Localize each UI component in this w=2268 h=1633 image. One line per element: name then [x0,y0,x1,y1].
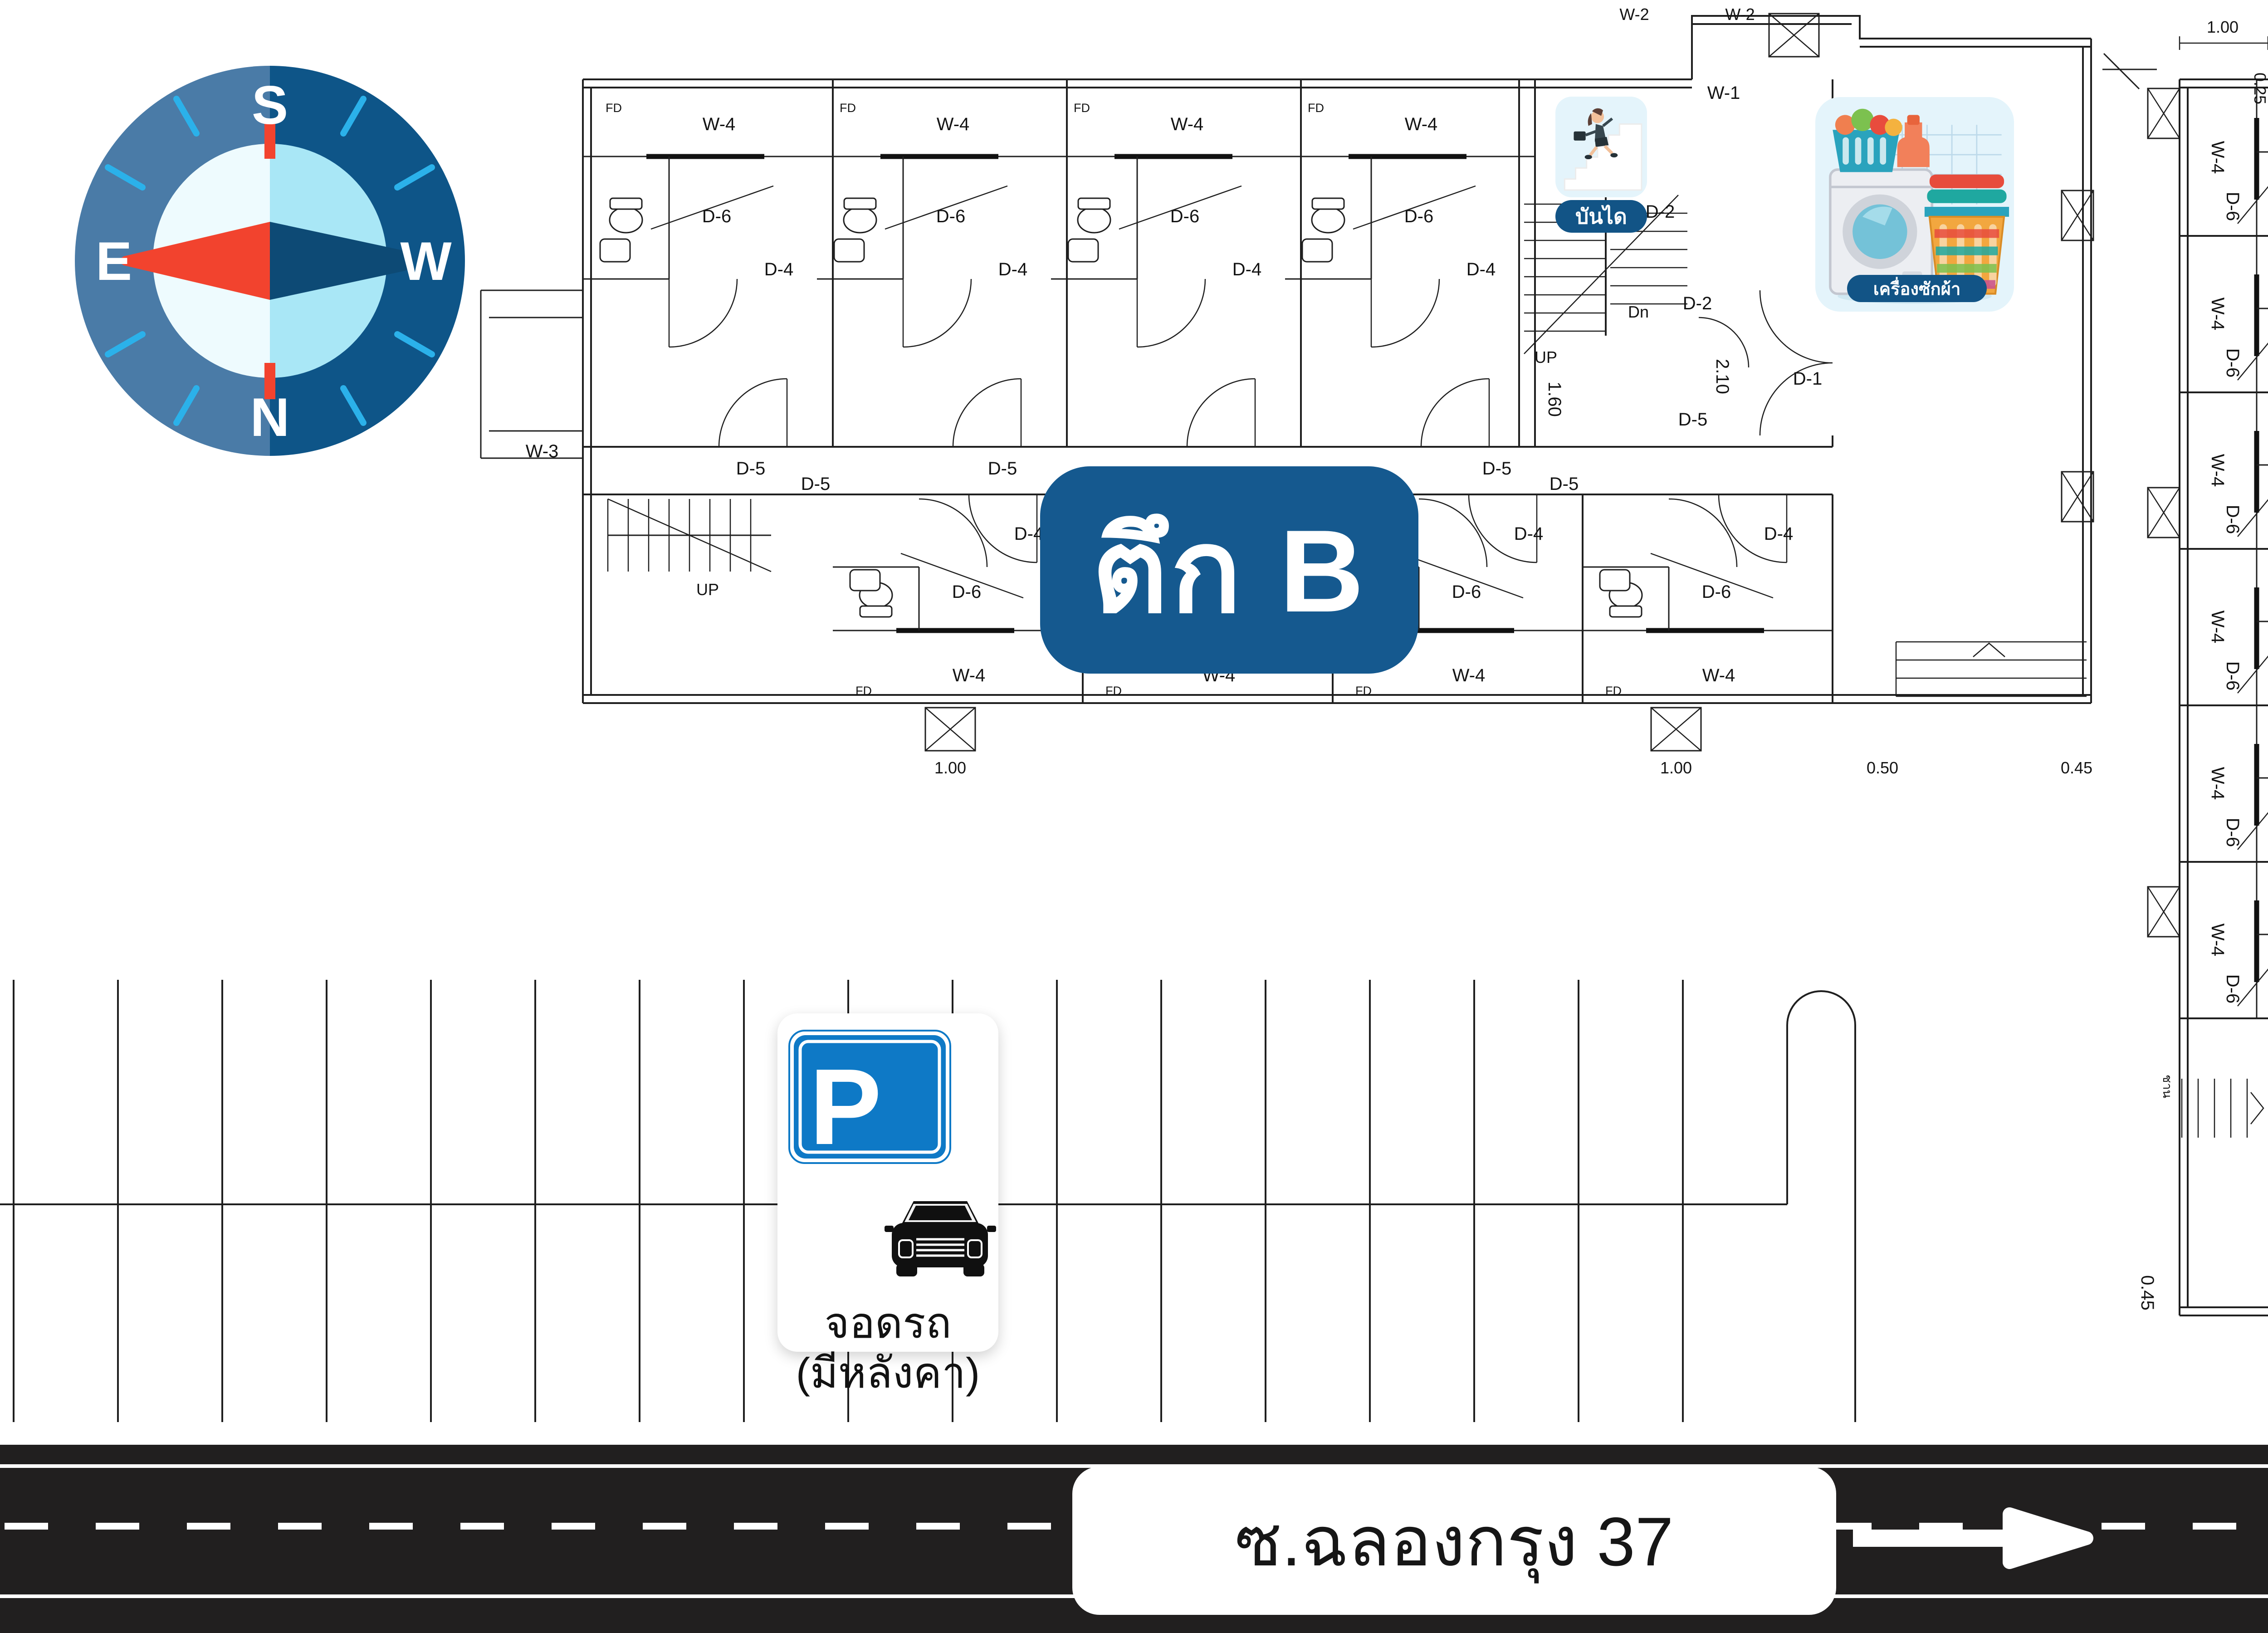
boundary-break-mark [2102,54,2157,89]
compass-east-label: E [96,231,132,292]
svg-text:D-5: D-5 [1482,459,1511,479]
road: ซ.ฉลองกรุง 37 [0,1445,2268,1633]
stairs-pill-b: บันได [1555,200,1647,233]
dim-025: 0.25 [2251,73,2268,104]
site-plan-page: { "compass": { "north": "N", "south": "S… [0,0,2268,1633]
building-a-top-dims: 1.00 0.25 [2180,18,2268,104]
road-direction-arrow [1853,1501,2107,1574]
stairs-pill-b-label: บันได [1575,200,1627,233]
laundry-pill: เครื่องซักผ้า [1847,275,1987,302]
stairs-up-label: UP [1535,348,1557,367]
compass-west-label: W [400,231,452,292]
driveway-lane-outline [1787,991,1855,1422]
svg-text:0.45: 0.45 [2137,1275,2157,1310]
compass-south-label: S [252,75,288,136]
building-a-plan: UP D-3 D-5 D-5 D-5 D-5 1.60 Dn 2.40 W-2 [2137,18,2268,1373]
dim-210: 2.10 [1712,359,1732,394]
svg-text:D-5: D-5 [801,474,830,494]
dim-160: 1.60 [1545,381,1564,417]
compass-north-label: N [250,387,290,448]
room-code-d2: D-2 [1683,293,1712,313]
dim-100: 1.00 [1660,758,1692,777]
car-icon [885,1201,996,1276]
room-code-d2: D-2 [1646,202,1675,222]
building-a-exterior-stair: ชาน [2160,1075,2263,1138]
dim-045: 0.45 [2061,758,2092,777]
compass-rose: S N E W [70,61,469,460]
building-a-shop-room: D-1 D-2 W-1 W-6 ชาน 1.80 0.45 [2137,1018,2268,1373]
building-b-badge-label: ตึก B [1092,477,1367,663]
svg-text:D-5: D-5 [1549,474,1579,494]
dim-050: 0.50 [1867,758,1898,777]
parking-caption-line2: (มีหลังคา) [777,1339,998,1407]
stairs-down-label: Dn [1628,303,1649,321]
room-code-w1: W-1 [1707,83,1740,103]
building-b-badge: ตึก B [1040,466,1418,674]
laundry-pill-label: เครื่องซักผ้า [1873,275,1961,303]
room-code-w2: W-2 [1619,5,1649,24]
stairs-person-icon [1555,97,1647,197]
svg-text:ชาน: ชาน [2160,1075,2174,1098]
building-b-left-stairs: UP [608,499,771,599]
road-name-label: ซ.ฉลองกรุง 37 [1072,1467,1836,1615]
p-sign-letter: P [810,1047,882,1167]
dim-100: 1.00 [934,758,966,777]
room-code-w2: W-2 [1725,5,1755,24]
stairs-icon-card-b [1555,97,1647,197]
svg-text:1.00: 1.00 [2207,18,2239,36]
room-code-d5: D-5 [1678,410,1707,430]
room-code-w3: W-3 [526,441,559,461]
svg-text:D-5: D-5 [988,459,1017,479]
parking-sign-card: P จอดรถ (มีหลังคา) [777,1013,998,1352]
room-code-d1: D-1 [1793,369,1822,389]
stairs-up-label: UP [696,580,719,599]
svg-text:D-5: D-5 [736,459,765,479]
road-name-text: ซ.ฉลองกรุง 37 [1235,1486,1674,1596]
